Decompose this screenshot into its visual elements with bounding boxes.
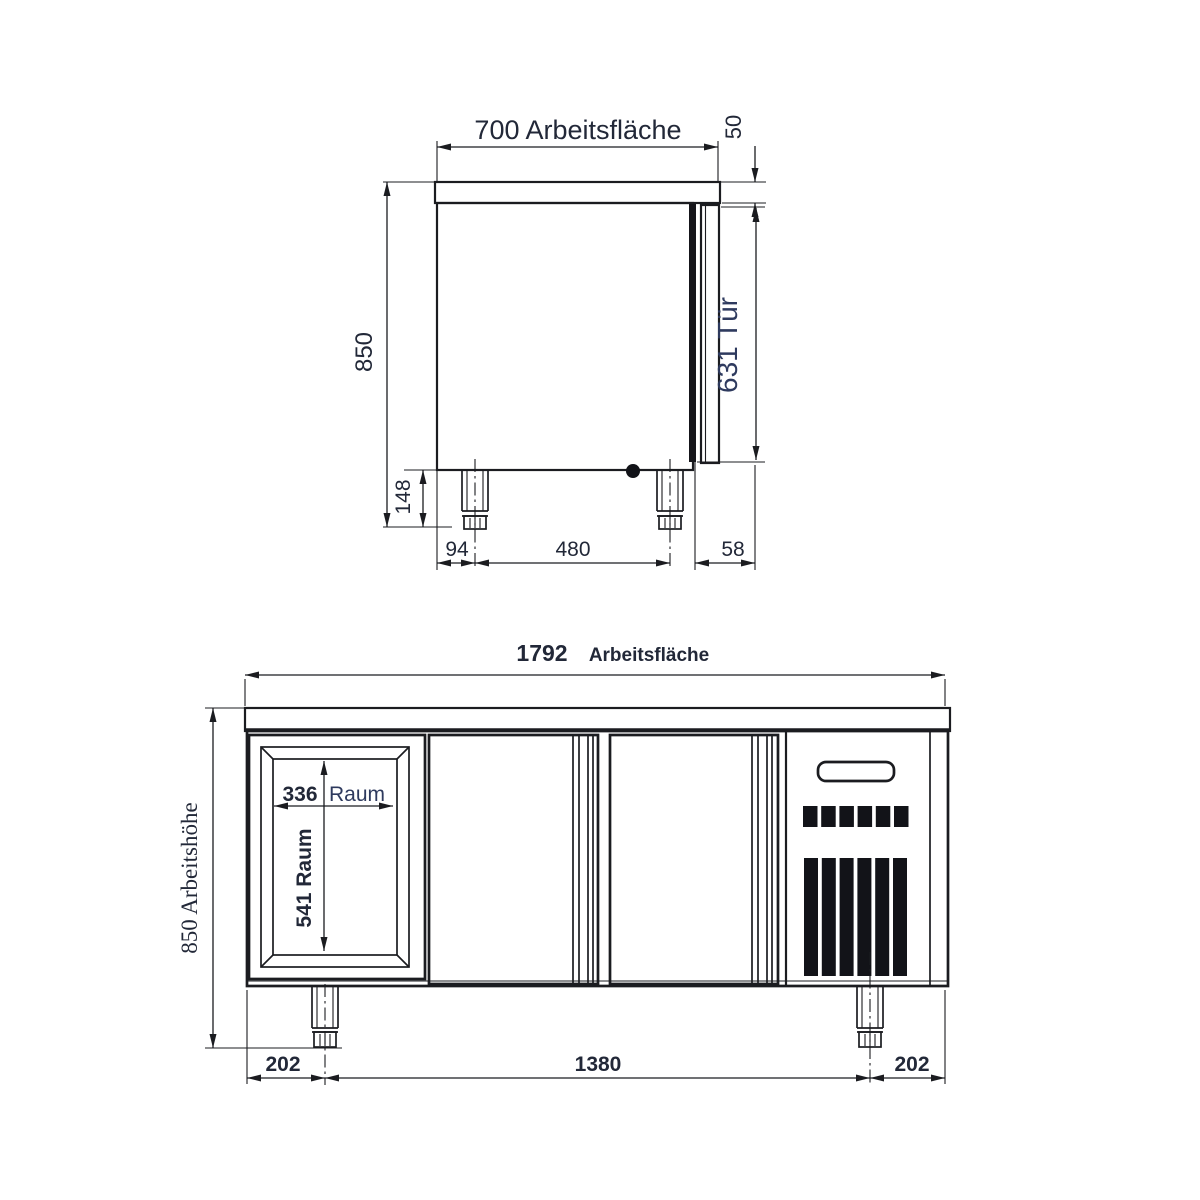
side-worktop — [435, 182, 720, 203]
drain-dot — [626, 464, 640, 478]
label-leg-148: 148 — [392, 479, 415, 514]
label-1380: 1380 — [575, 1053, 622, 1076]
label-right-202: 202 — [894, 1053, 929, 1076]
label-work-height: 850 Arbeitshöhe — [177, 802, 202, 953]
front-door-left — [249, 735, 425, 979]
dim-door-631: 631 Tür — [697, 207, 765, 462]
label-door-631: 631 Tür — [712, 297, 743, 393]
dim-front-width-1792: 1792 Arbeitsfläche — [245, 640, 945, 706]
label-left-202: 202 — [265, 1053, 300, 1076]
counter-dimension-drawing: 700 Arbeitsfläche 50 850 148 631 Tür — [0, 0, 1200, 1200]
label-541: 541 Raum — [293, 828, 316, 927]
label-offset-94: 94 — [445, 538, 469, 561]
label-height-850: 850 — [351, 332, 378, 372]
side-door-gap — [689, 204, 696, 462]
vent-grille — [804, 858, 907, 976]
technical-drawing-page: 700 Arbeitsfläche 50 850 148 631 Tür — [0, 0, 1200, 1200]
side-leg-right — [657, 459, 683, 570]
label-worktop-700: 700 Arbeitsfläche — [474, 115, 681, 145]
label-336-word: Raum — [329, 783, 385, 806]
dim-compartment-width-336: 336 Raum — [274, 783, 393, 806]
side-body — [437, 203, 693, 470]
dim-worktop-700: 700 Arbeitsfläche — [437, 115, 718, 181]
dim-leg-height-148: 148 — [392, 470, 437, 527]
label-thickness-50: 50 — [721, 115, 746, 139]
side-view: 700 Arbeitsfläche 50 850 148 631 Tür — [351, 115, 766, 570]
front-leg-left — [312, 984, 338, 1085]
dim-worktop-thickness-50: 50 — [721, 115, 755, 220]
label-width-word: Arbeitsfläche — [589, 645, 709, 666]
vent-squares — [803, 806, 909, 827]
label-spacing-480: 480 — [555, 538, 590, 561]
display-slot — [818, 762, 894, 781]
dim-front-bottom-chain: 202 1380 202 — [247, 990, 945, 1084]
front-door-3 — [610, 735, 778, 984]
label-depth-58: 58 — [721, 538, 744, 561]
label-336: 336 — [282, 783, 317, 806]
label-width-1792: 1792 — [516, 640, 567, 666]
front-worktop — [245, 708, 950, 731]
machine-compartment — [786, 731, 930, 986]
front-door-2 — [429, 735, 598, 984]
front-view: 1792 Arbeitsfläche 336 Raum — [177, 640, 950, 1085]
